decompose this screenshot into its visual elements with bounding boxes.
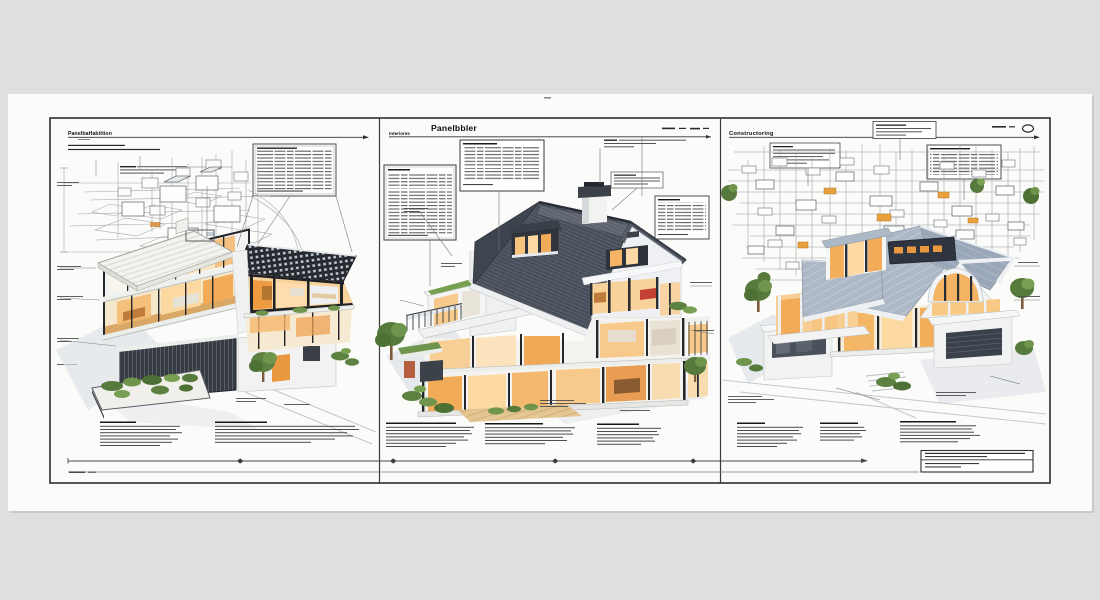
svg-text:Interiores: Interiores: [389, 131, 410, 136]
svg-text:Panelbbler: Panelbbler: [431, 123, 477, 133]
svg-text:Constructoring: Constructoring: [729, 131, 774, 137]
svg-text:PanelbaHabittion: PanelbaHabittion: [68, 131, 112, 137]
